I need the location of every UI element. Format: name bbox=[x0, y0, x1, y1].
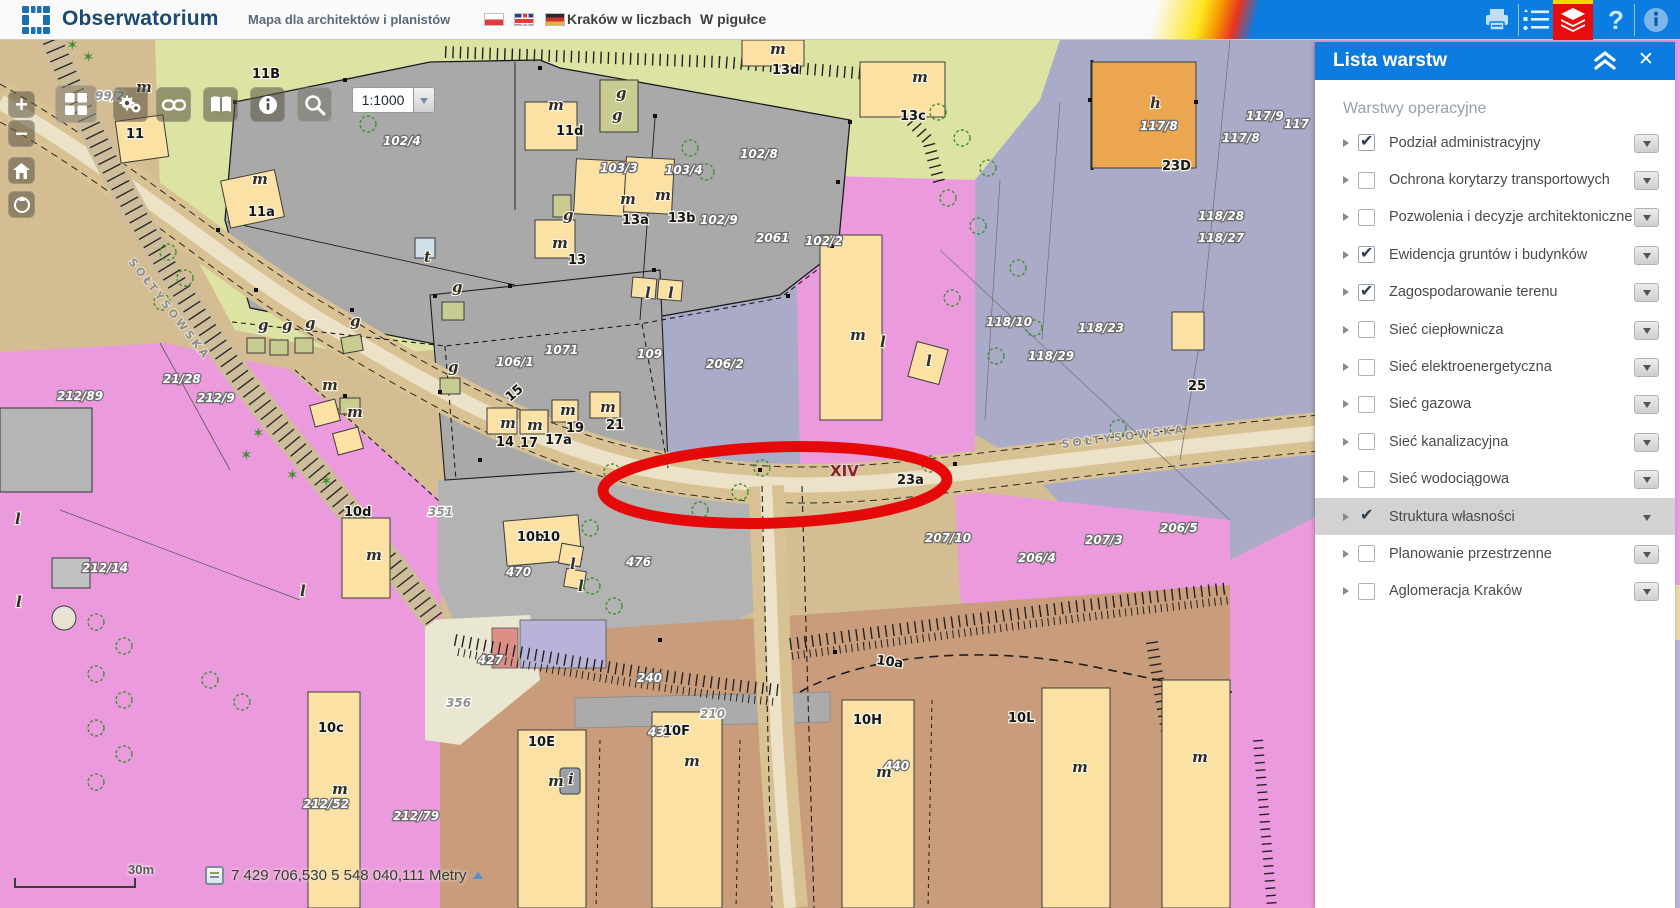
svg-text:118/29: 118/29 bbox=[1028, 349, 1074, 363]
layer-checkbox[interactable] bbox=[1358, 321, 1375, 338]
layer-label: Ewidencja gruntów i budynków bbox=[1389, 247, 1587, 263]
svg-text:109: 109 bbox=[637, 347, 662, 361]
search-button[interactable] bbox=[297, 87, 332, 122]
svg-text:14: 14 bbox=[496, 435, 514, 450]
minus-icon: − bbox=[15, 121, 28, 147]
svg-text:✶: ✶ bbox=[240, 447, 253, 464]
zoom-out-button[interactable]: − bbox=[8, 120, 35, 147]
svg-text:13c: 13c bbox=[900, 109, 926, 124]
legend-icon bbox=[1523, 9, 1549, 31]
svg-text:m: m bbox=[548, 772, 564, 790]
layer-row-4[interactable]: Zagospodarowanie terenu bbox=[1315, 274, 1675, 311]
layers-button[interactable] bbox=[1553, 0, 1593, 40]
layer-checkbox[interactable] bbox=[1358, 396, 1375, 413]
chevron-down-icon bbox=[1643, 402, 1651, 412]
layer-options-dropdown[interactable] bbox=[1634, 433, 1659, 452]
layer-row-1[interactable]: Ochrona korytarzy transportowych bbox=[1315, 161, 1675, 198]
svg-text:m: m bbox=[527, 416, 543, 434]
coordinates-widget: 7 429 706,530 5 548 040,111 Metry bbox=[205, 866, 483, 885]
svg-text:m: m bbox=[684, 752, 700, 770]
layer-options-dropdown[interactable] bbox=[1634, 508, 1659, 527]
svg-text:l: l bbox=[570, 555, 576, 573]
layer-label: Sieć gazowa bbox=[1389, 396, 1471, 412]
layer-checkbox[interactable] bbox=[1358, 508, 1375, 525]
svg-text:m: m bbox=[366, 546, 382, 564]
expander-icon[interactable] bbox=[1343, 400, 1349, 408]
layer-row-0[interactable]: Podział administracyjny bbox=[1315, 124, 1675, 161]
svg-text:✶: ✶ bbox=[82, 49, 95, 66]
layer-options-dropdown[interactable] bbox=[1634, 134, 1659, 153]
app-title: Obserwatorium bbox=[62, 7, 219, 31]
svg-text:l: l bbox=[880, 333, 886, 351]
svg-text:103/4: 103/4 bbox=[665, 163, 703, 177]
expander-icon[interactable] bbox=[1343, 550, 1349, 558]
info-button[interactable] bbox=[1638, 0, 1674, 40]
layer-options-dropdown[interactable] bbox=[1634, 171, 1659, 190]
expander-icon[interactable] bbox=[1343, 251, 1349, 259]
chevron-down-icon bbox=[1643, 141, 1651, 151]
svg-text:13a: 13a bbox=[622, 213, 649, 228]
svg-text:10F: 10F bbox=[663, 724, 690, 739]
svg-text:118/27: 118/27 bbox=[1198, 231, 1245, 245]
bookmarks-button[interactable] bbox=[203, 87, 238, 122]
info-icon bbox=[1643, 7, 1669, 33]
layer-options-dropdown[interactable] bbox=[1634, 208, 1659, 227]
svg-text:l: l bbox=[16, 593, 22, 611]
expander-icon[interactable] bbox=[1343, 326, 1349, 334]
layer-row-6[interactable]: Sieć elektroenergetyczna bbox=[1315, 348, 1675, 385]
svg-text:✶: ✶ bbox=[320, 473, 333, 490]
gears-icon bbox=[119, 95, 143, 115]
layer-options-dropdown[interactable] bbox=[1634, 321, 1659, 340]
map-scale-value[interactable]: 1:1000 bbox=[352, 87, 414, 113]
layer-checkbox[interactable] bbox=[1358, 359, 1375, 376]
svg-text:10E: 10E bbox=[528, 735, 555, 750]
svg-text:g: g bbox=[258, 316, 269, 334]
svg-text:10: 10 bbox=[542, 530, 560, 545]
layer-options-dropdown[interactable] bbox=[1634, 358, 1659, 377]
expander-icon[interactable] bbox=[1343, 475, 1349, 483]
layer-row-8[interactable]: Sieć kanalizacyjna bbox=[1315, 423, 1675, 460]
svg-text:207/3: 207/3 bbox=[1085, 533, 1123, 547]
svg-text:117/8: 117/8 bbox=[1140, 119, 1178, 133]
layer-label: Struktura własności bbox=[1389, 509, 1515, 525]
svg-text:118/10: 118/10 bbox=[986, 315, 1032, 329]
svg-text:m: m bbox=[322, 376, 338, 394]
print-button[interactable] bbox=[1480, 0, 1514, 40]
svg-text:206/5: 206/5 bbox=[1160, 521, 1198, 535]
app-subtitle: Mapa dla architektów i planistów bbox=[248, 12, 450, 27]
svg-text:m: m bbox=[252, 170, 268, 188]
svg-text:m: m bbox=[912, 68, 928, 86]
svg-text:25: 25 bbox=[1188, 379, 1206, 394]
svg-text:g: g bbox=[448, 358, 459, 376]
svg-text:m: m bbox=[655, 186, 671, 204]
book-icon bbox=[210, 96, 232, 114]
chevron-down-icon bbox=[1643, 365, 1651, 375]
svg-text:✶: ✶ bbox=[252, 425, 265, 442]
flag-poland-icon[interactable] bbox=[484, 13, 504, 26]
svg-text:g: g bbox=[612, 106, 623, 124]
layer-label: Sieć elektroenergetyczna bbox=[1389, 359, 1552, 375]
chevron-down-icon bbox=[1643, 477, 1651, 487]
layer-options-dropdown[interactable] bbox=[1634, 582, 1659, 601]
svg-text:11a: 11a bbox=[248, 205, 275, 220]
chevron-down-icon bbox=[1643, 328, 1651, 338]
svg-text:l: l bbox=[645, 284, 651, 302]
svg-text:427: 427 bbox=[477, 653, 504, 667]
svg-text:m: m bbox=[876, 763, 892, 781]
svg-text:212/89: 212/89 bbox=[57, 389, 103, 403]
link-icon bbox=[162, 99, 186, 111]
svg-text:m: m bbox=[850, 326, 866, 344]
scale-bar bbox=[14, 878, 136, 888]
svg-text:212/52: 212/52 bbox=[303, 797, 349, 811]
collapse-panel-button[interactable] bbox=[1593, 50, 1617, 72]
svg-text:212/14: 212/14 bbox=[82, 561, 128, 575]
layer-options-dropdown[interactable] bbox=[1634, 283, 1659, 302]
svg-text:102/9: 102/9 bbox=[700, 213, 738, 227]
layer-checkbox[interactable] bbox=[1358, 172, 1375, 189]
svg-text:207/10: 207/10 bbox=[925, 531, 971, 545]
identify-button[interactable] bbox=[250, 87, 285, 122]
layer-label: Zagospodarowanie terenu bbox=[1389, 284, 1557, 300]
svg-text:l: l bbox=[926, 352, 932, 370]
layer-row-10[interactable]: Struktura własności bbox=[1315, 498, 1675, 535]
svg-text:t: t bbox=[424, 248, 431, 266]
svg-text:117/8: 117/8 bbox=[1222, 131, 1260, 145]
svg-text:m: m bbox=[1192, 748, 1208, 766]
settings-button[interactable] bbox=[113, 87, 148, 122]
svg-text:10c: 10c bbox=[318, 721, 344, 736]
help-button[interactable]: ? bbox=[1600, 0, 1632, 40]
svg-text:118/23: 118/23 bbox=[1078, 321, 1124, 335]
layer-checkbox[interactable] bbox=[1358, 134, 1375, 151]
layer-options-dropdown[interactable] bbox=[1634, 395, 1659, 414]
svg-text:✶: ✶ bbox=[66, 40, 79, 54]
layer-options-dropdown[interactable] bbox=[1634, 545, 1659, 564]
svg-text:1071: 1071 bbox=[545, 343, 578, 357]
flag-uk-icon[interactable] bbox=[514, 13, 534, 26]
expander-icon[interactable] bbox=[1343, 363, 1349, 371]
scale-bar-label: 30m bbox=[128, 862, 154, 877]
svg-text:21/28: 21/28 bbox=[163, 372, 201, 386]
svg-text:210: 210 bbox=[700, 707, 725, 721]
coordinates-readout: 7 429 706,530 5 548 040,111 Metry bbox=[231, 867, 466, 884]
svg-text:h: h bbox=[1150, 94, 1161, 112]
expander-icon[interactable] bbox=[1343, 288, 1349, 296]
svg-text:10b: 10b bbox=[517, 530, 544, 545]
svg-text:11d: 11d bbox=[556, 124, 583, 139]
chevron-down-icon bbox=[420, 98, 428, 108]
chevron-down-icon bbox=[1643, 552, 1651, 562]
basemap-gallery-button[interactable] bbox=[55, 85, 97, 123]
print-icon bbox=[1485, 9, 1509, 31]
layer-row-5[interactable]: Sieć ciepłownicza bbox=[1315, 311, 1675, 348]
link-w-pigulce[interactable]: W pigułce bbox=[700, 11, 766, 27]
svg-text:102/2: 102/2 bbox=[805, 234, 843, 248]
layer-label: Sieć wodociągowa bbox=[1389, 471, 1509, 487]
svg-text:23D: 23D bbox=[1162, 159, 1191, 174]
layer-label: Sieć ciepłownicza bbox=[1389, 322, 1503, 338]
svg-text:m: m bbox=[332, 780, 348, 798]
svg-text:m: m bbox=[560, 401, 576, 419]
coordinates-expand-icon[interactable] bbox=[473, 867, 483, 879]
layer-label: Planowanie przestrzenne bbox=[1389, 546, 1552, 562]
zoom-in-button[interactable]: + bbox=[8, 91, 35, 118]
layer-label: Pozwolenia i decyzje architektoniczne bbox=[1389, 209, 1632, 225]
svg-text:✶: ✶ bbox=[286, 467, 299, 484]
layers-panel-title: Lista warstw bbox=[1315, 50, 1447, 72]
application-window: Obserwatorium Mapa dla architektów i pla… bbox=[0, 0, 1680, 908]
grid-icon bbox=[65, 93, 87, 115]
svg-text:470: 470 bbox=[505, 565, 531, 579]
svg-text:10H: 10H bbox=[853, 713, 882, 728]
home-icon bbox=[13, 163, 30, 179]
svg-text:m: m bbox=[500, 414, 516, 432]
svg-text:206/4: 206/4 bbox=[1018, 551, 1056, 565]
layer-list: Podział administracyjnyOchrona korytarzy… bbox=[1315, 124, 1675, 610]
svg-text:21: 21 bbox=[606, 418, 624, 433]
svg-text:10d: 10d bbox=[344, 505, 371, 520]
chevron-down-icon bbox=[1643, 290, 1651, 300]
layer-checkbox[interactable] bbox=[1358, 433, 1375, 450]
legend-button[interactable] bbox=[1520, 0, 1552, 40]
layer-row-12[interactable]: Aglomeracja Kraków bbox=[1315, 573, 1675, 610]
svg-text:11: 11 bbox=[126, 127, 144, 142]
svg-text:11B: 11B bbox=[252, 67, 280, 82]
svg-text:118/28: 118/28 bbox=[1198, 209, 1244, 223]
layer-options-dropdown[interactable] bbox=[1634, 246, 1659, 265]
search-icon bbox=[304, 94, 326, 116]
identify-info-icon bbox=[258, 95, 278, 115]
svg-text:l: l bbox=[300, 582, 306, 600]
layer-label: Sieć kanalizacyjna bbox=[1389, 434, 1508, 450]
layers-panel: Lista warstw ✕ Warstwy operacyjne Podzia… bbox=[1315, 42, 1675, 908]
top-bar: Obserwatorium Mapa dla architektów i pla… bbox=[0, 0, 1680, 40]
svg-text:103/3: 103/3 bbox=[600, 161, 638, 175]
svg-text:19: 19 bbox=[566, 421, 584, 436]
svg-text:g: g bbox=[616, 84, 627, 102]
layer-label: Podział administracyjny bbox=[1389, 135, 1541, 151]
svg-text:351: 351 bbox=[428, 505, 453, 519]
svg-text:m: m bbox=[770, 40, 786, 58]
layer-row-9[interactable]: Sieć wodociągowa bbox=[1315, 461, 1675, 498]
svg-text:l: l bbox=[15, 510, 21, 528]
svg-text:13: 13 bbox=[568, 253, 586, 268]
svg-text:102/4: 102/4 bbox=[383, 134, 421, 148]
chevron-down-icon bbox=[1643, 178, 1651, 188]
svg-text:212/79: 212/79 bbox=[393, 809, 439, 823]
toolbar-divider bbox=[1518, 4, 1519, 36]
layer-row-7[interactable]: Sieć gazowa bbox=[1315, 386, 1675, 423]
chevron-down-icon bbox=[1643, 440, 1651, 450]
svg-text:m: m bbox=[620, 190, 636, 208]
svg-text:g: g bbox=[563, 206, 574, 224]
app-logo-icon[interactable] bbox=[22, 6, 50, 34]
expander-icon[interactable] bbox=[1343, 176, 1349, 184]
layer-row-2[interactable]: Pozwolenia i decyzje architektoniczne bbox=[1315, 199, 1675, 236]
expander-icon[interactable] bbox=[1343, 438, 1349, 446]
close-icon: ✕ bbox=[1638, 48, 1654, 70]
svg-text:g: g bbox=[282, 316, 293, 334]
svg-text:356: 356 bbox=[446, 696, 471, 710]
svg-text:l: l bbox=[578, 577, 584, 595]
layer-row-11[interactable]: Planowanie przestrzenne bbox=[1315, 535, 1675, 572]
expander-icon[interactable] bbox=[1343, 587, 1349, 595]
svg-text:m: m bbox=[600, 398, 616, 416]
flag-germany-icon[interactable] bbox=[545, 13, 565, 26]
link-krakow-w-liczbach[interactable]: Kraków w liczbach bbox=[567, 11, 691, 27]
expander-icon[interactable] bbox=[1343, 513, 1349, 521]
chevron-down-icon bbox=[1643, 589, 1651, 599]
share-link-button[interactable] bbox=[156, 87, 191, 122]
layer-row-3[interactable]: Ewidencja gruntów i budynków bbox=[1315, 236, 1675, 273]
layer-checkbox[interactable] bbox=[1358, 246, 1375, 263]
layer-checkbox[interactable] bbox=[1358, 545, 1375, 562]
svg-text:g: g bbox=[305, 314, 316, 332]
coordinates-icon[interactable] bbox=[205, 866, 224, 885]
svg-text:117: 117 bbox=[1284, 117, 1310, 131]
reset-rotation-button[interactable] bbox=[8, 191, 35, 218]
svg-text:240: 240 bbox=[637, 671, 662, 685]
svg-text:g: g bbox=[452, 278, 463, 296]
svg-text:102/8: 102/8 bbox=[740, 147, 778, 161]
layer-checkbox[interactable] bbox=[1358, 284, 1375, 301]
svg-text:m: m bbox=[347, 403, 363, 421]
layer-checkbox[interactable] bbox=[1358, 209, 1375, 226]
svg-text:g: g bbox=[350, 312, 361, 330]
chevron-down-icon bbox=[1643, 515, 1651, 525]
layer-options-dropdown[interactable] bbox=[1634, 470, 1659, 489]
svg-text:m: m bbox=[548, 96, 564, 114]
close-panel-button[interactable]: ✕ bbox=[1635, 48, 1657, 72]
svg-text:13b: 13b bbox=[668, 211, 695, 226]
svg-text:2061: 2061 bbox=[756, 231, 789, 245]
help-icon: ? bbox=[1608, 5, 1624, 36]
chevron-down-icon bbox=[1643, 253, 1651, 263]
svg-text:212/9: 212/9 bbox=[197, 391, 235, 405]
compass-icon bbox=[13, 196, 31, 214]
svg-text:l: l bbox=[668, 284, 674, 302]
svg-text:17: 17 bbox=[520, 436, 538, 451]
layer-label: Ochrona korytarzy transportowych bbox=[1389, 172, 1610, 188]
chevron-down-icon bbox=[1643, 215, 1651, 225]
home-extent-button[interactable] bbox=[8, 157, 35, 184]
svg-text:117/9: 117/9 bbox=[1246, 109, 1284, 123]
svg-text:i: i bbox=[568, 770, 574, 788]
layer-checkbox[interactable] bbox=[1358, 583, 1375, 600]
layer-checkbox[interactable] bbox=[1358, 471, 1375, 488]
svg-text:476: 476 bbox=[625, 555, 651, 569]
svg-text:23a: 23a bbox=[897, 473, 924, 488]
svg-text:m: m bbox=[552, 234, 568, 252]
layers-icon bbox=[1560, 8, 1586, 32]
svg-text:106/1: 106/1 bbox=[496, 355, 534, 369]
scale-dropdown-button[interactable] bbox=[414, 87, 435, 113]
expander-icon[interactable] bbox=[1343, 139, 1349, 147]
svg-text:10L: 10L bbox=[1008, 711, 1034, 726]
svg-text:206/2: 206/2 bbox=[706, 357, 744, 371]
toolbar-divider bbox=[1634, 4, 1635, 36]
layers-panel-header: Lista warstw ✕ bbox=[1315, 42, 1675, 80]
svg-text:XIV: XIV bbox=[830, 462, 859, 480]
svg-text:13d: 13d bbox=[772, 63, 799, 78]
svg-text:m: m bbox=[1072, 758, 1088, 776]
plus-icon: + bbox=[15, 92, 28, 118]
layer-label: Aglomeracja Kraków bbox=[1389, 583, 1522, 599]
layers-section-title: Warstwy operacyjne bbox=[1343, 100, 1486, 118]
expander-icon[interactable] bbox=[1343, 213, 1349, 221]
